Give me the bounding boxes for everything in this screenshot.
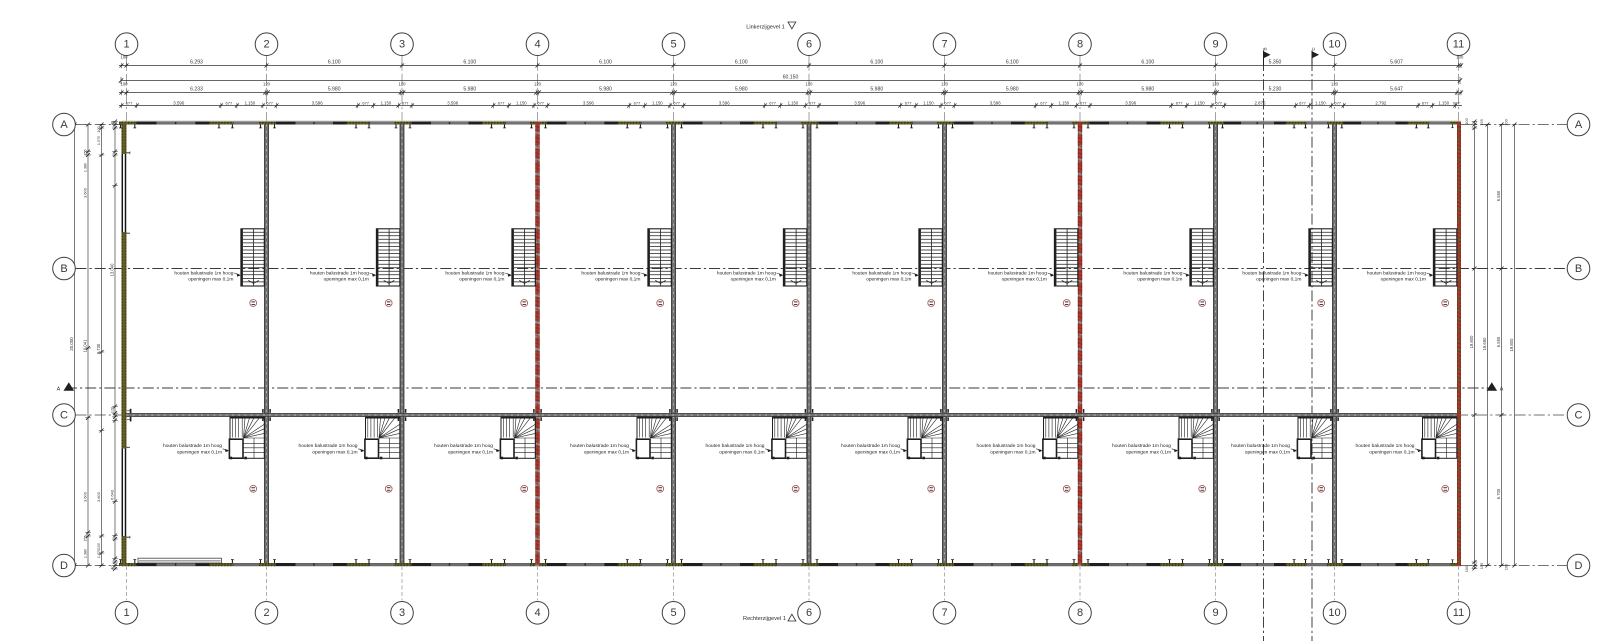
svg-text:5.980: 5.980	[599, 87, 612, 93]
svg-text:155: 155	[84, 535, 88, 541]
svg-text:3: 3	[399, 607, 405, 619]
svg-text:155: 155	[1479, 119, 1484, 126]
svg-text:houten balustrade 1m hoog: houten balustrade 1m hoog	[1231, 443, 1290, 449]
svg-text:6.100: 6.100	[463, 60, 476, 66]
svg-text:6.640: 6.640	[110, 489, 115, 500]
svg-text:openingen max 0,1m: openingen max 0,1m	[1256, 277, 1301, 283]
svg-text:1.150: 1.150	[381, 101, 392, 106]
svg-text:houten balustrade 1m hoog: houten balustrade 1m hoog	[1123, 270, 1182, 276]
svg-text:C: C	[60, 409, 68, 421]
svg-text:6: 6	[806, 39, 812, 51]
svg-text:8: 8	[1077, 607, 1083, 619]
svg-text:houten balustrade 1m hoog: houten balustrade 1m hoog	[163, 443, 222, 449]
svg-text:houten balustrade 1m hoog: houten balustrade 1m hoog	[1356, 443, 1415, 449]
svg-text:677: 677	[905, 101, 912, 106]
svg-text:677: 677	[537, 101, 544, 106]
svg-text:1.150: 1.150	[1194, 101, 1205, 106]
svg-text:1.150: 1.150	[1059, 101, 1070, 106]
svg-text:155: 155	[84, 149, 88, 155]
svg-text:houten balustrade 1m hoog: houten balustrade 1m hoog	[988, 270, 1047, 276]
svg-text:677: 677	[1299, 101, 1306, 106]
svg-text:40: 40	[111, 565, 115, 569]
svg-text:677: 677	[266, 101, 273, 106]
svg-text:openingen max 0,1m: openingen max 0,1m	[459, 277, 504, 283]
svg-text:6.100: 6.100	[1006, 60, 1019, 66]
svg-text:3.596: 3.596	[583, 101, 595, 106]
svg-text:1.150: 1.150	[516, 101, 527, 106]
svg-text:openingen max 0,1m: openingen max 0,1m	[990, 449, 1035, 455]
svg-text:A: A	[57, 386, 61, 392]
svg-text:3.596: 3.596	[854, 101, 866, 106]
svg-text:6.233: 6.233	[190, 87, 203, 93]
svg-text:5.980: 5.980	[328, 87, 341, 93]
svg-text:677: 677	[1176, 101, 1183, 106]
svg-text:1: 1	[123, 607, 129, 619]
svg-text:677: 677	[226, 101, 233, 106]
svg-text:openingen max 0,1m: openingen max 0,1m	[188, 277, 233, 283]
svg-text:C: C	[1575, 409, 1583, 421]
svg-text:houten balustrade 1m hoog: houten balustrade 1m hoog	[581, 270, 640, 276]
svg-text:19.800: 19.800	[1469, 335, 1474, 348]
svg-text:houten balustrade 1m hoog: houten balustrade 1m hoog	[1367, 270, 1426, 276]
svg-text:9.730: 9.730	[96, 343, 101, 354]
svg-text:3: 3	[399, 39, 405, 51]
svg-text:7: 7	[941, 607, 947, 619]
svg-text:openingen max 0,1m: openingen max 0,1m	[1137, 277, 1182, 283]
svg-text:120: 120	[399, 82, 407, 87]
svg-text:houten balustrade 1m hoog: houten balustrade 1m hoog	[310, 270, 369, 276]
svg-text:5: 5	[670, 39, 676, 51]
svg-text:B: B	[1575, 263, 1582, 275]
svg-text:4: 4	[534, 39, 540, 51]
svg-text:677: 677	[1453, 101, 1460, 106]
svg-text:1.150: 1.150	[1439, 101, 1450, 106]
svg-text:677: 677	[769, 101, 776, 106]
svg-text:houten balustrade 1m hoog: houten balustrade 1m hoog	[717, 270, 776, 276]
svg-text:Linkerzijgevel 1: Linkerzijgevel 1	[746, 25, 785, 31]
svg-text:100: 100	[1464, 117, 1469, 124]
svg-text:6.100: 6.100	[735, 60, 748, 66]
svg-text:houten balustrade 1m hoog: houten balustrade 1m hoog	[1242, 270, 1301, 276]
svg-text:openingen max 0,1m: openingen max 0,1m	[1126, 449, 1171, 455]
svg-text:openingen max 0,1m: openingen max 0,1m	[1245, 449, 1290, 455]
svg-text:5.980: 5.980	[735, 87, 748, 93]
svg-text:677: 677	[809, 101, 816, 106]
svg-text:677: 677	[1422, 101, 1429, 106]
svg-text:120: 120	[534, 82, 542, 87]
svg-text:openingen max 0,1m: openingen max 0,1m	[719, 449, 764, 455]
svg-text:120: 120	[941, 82, 949, 87]
svg-text:100: 100	[1464, 565, 1469, 572]
svg-text:3.600: 3.600	[83, 187, 88, 198]
svg-text:3.596: 3.596	[312, 101, 324, 106]
svg-text:1.070: 1.070	[97, 136, 101, 145]
svg-text:6.100: 6.100	[328, 60, 341, 66]
svg-text:openingen max 0,1m: openingen max 0,1m	[1381, 277, 1426, 283]
svg-text:13.040: 13.040	[110, 263, 115, 276]
svg-text:6.100: 6.100	[870, 60, 883, 66]
svg-text:40: 40	[111, 121, 115, 125]
svg-text:houten balustrade 1m hoog: houten balustrade 1m hoog	[852, 270, 911, 276]
svg-text:B: B	[1262, 47, 1267, 50]
svg-text:3.600: 3.600	[96, 491, 101, 502]
svg-text:1.380: 1.380	[84, 163, 88, 172]
svg-text:houten balustrade 1m hoog: houten balustrade 1m hoog	[434, 443, 493, 449]
svg-text:100: 100	[121, 82, 129, 87]
svg-text:2: 2	[263, 39, 269, 51]
svg-text:2: 2	[263, 607, 269, 619]
svg-text:120: 120	[1212, 82, 1220, 87]
svg-text:openingen max 0,1m: openingen max 0,1m	[1002, 277, 1047, 283]
svg-text:5.980: 5.980	[1141, 87, 1154, 93]
svg-text:A: A	[60, 119, 68, 131]
svg-text:openingen max 0,1m: openingen max 0,1m	[866, 277, 911, 283]
svg-text:D: D	[60, 560, 68, 572]
svg-text:6.100: 6.100	[599, 60, 612, 66]
svg-text:120: 120	[111, 407, 115, 413]
svg-text:11: 11	[1453, 39, 1464, 51]
svg-text:677: 677	[944, 101, 951, 106]
svg-text:1.150: 1.150	[788, 101, 799, 106]
svg-text:6.100: 6.100	[1141, 60, 1154, 66]
svg-text:120: 120	[1077, 82, 1085, 87]
svg-text:5.980: 5.980	[1006, 87, 1019, 93]
svg-text:9: 9	[1212, 607, 1218, 619]
svg-text:1.070: 1.070	[97, 549, 101, 558]
svg-text:3.596: 3.596	[447, 101, 459, 106]
svg-text:openingen max 0,1m: openingen max 0,1m	[855, 449, 900, 455]
svg-text:1.380: 1.380	[84, 549, 88, 558]
svg-text:A: A	[1575, 119, 1583, 131]
svg-text:openingen max 0,1m: openingen max 0,1m	[177, 449, 222, 455]
svg-text:677: 677	[498, 101, 505, 106]
svg-text:5: 5	[670, 607, 676, 619]
svg-text:5.647: 5.647	[1390, 87, 1403, 93]
svg-text:2.875: 2.875	[1255, 101, 1267, 106]
svg-text:9: 9	[1212, 39, 1218, 51]
svg-text:houten balustrade 1m hoog: houten balustrade 1m hoog	[445, 270, 504, 276]
svg-text:677: 677	[634, 101, 641, 106]
svg-text:120: 120	[670, 82, 678, 87]
svg-text:3.596: 3.596	[1125, 101, 1137, 106]
svg-text:openingen max 0,1m: openingen max 0,1m	[1369, 449, 1414, 455]
svg-text:20.000: 20.000	[69, 337, 74, 351]
svg-text:6.550: 6.550	[1496, 336, 1501, 347]
svg-text:677: 677	[1080, 101, 1087, 106]
svg-text:7: 7	[941, 39, 947, 51]
svg-text:houten balustrade 1m hoog: houten balustrade 1m hoog	[706, 443, 765, 449]
svg-text:5.980: 5.980	[463, 87, 476, 93]
svg-text:Rechterzijgevel 1: Rechterzijgevel 1	[743, 616, 786, 622]
svg-text:5.980: 5.980	[870, 87, 883, 93]
svg-text:10.041: 10.041	[83, 339, 88, 352]
svg-text:openingen max 0,1m: openingen max 0,1m	[584, 449, 629, 455]
svg-text:6.293: 6.293	[190, 60, 203, 66]
svg-text:6.550: 6.550	[1496, 190, 1501, 201]
svg-text:10: 10	[1328, 39, 1340, 51]
svg-text:houten balustrade 1m hoog: houten balustrade 1m hoog	[570, 443, 629, 449]
svg-text:openingen max 0,1m: openingen max 0,1m	[731, 277, 776, 283]
svg-text:677: 677	[362, 101, 369, 106]
svg-text:openingen max 0,1m: openingen max 0,1m	[595, 277, 640, 283]
svg-text:6.700: 6.700	[1496, 488, 1501, 499]
svg-text:houten balustrade 1m hoog: houten balustrade 1m hoog	[174, 270, 233, 276]
svg-text:60.150: 60.150	[783, 75, 799, 81]
svg-text:11: 11	[1453, 607, 1464, 619]
svg-text:houten balustrade 1m hoog: houten balustrade 1m hoog	[1112, 443, 1171, 449]
svg-text:houten balustrade 1m hoog: houten balustrade 1m hoog	[841, 443, 900, 449]
svg-text:B: B	[60, 263, 67, 275]
svg-text:1: 1	[123, 39, 129, 51]
svg-text:houten balustrade 1m hoog: houten balustrade 1m hoog	[977, 443, 1036, 449]
svg-text:100: 100	[97, 543, 101, 549]
svg-text:2.792: 2.792	[1375, 101, 1387, 106]
svg-text:19.690: 19.690	[1482, 337, 1487, 350]
svg-text:1.150: 1.150	[652, 101, 663, 106]
svg-text:6: 6	[806, 607, 812, 619]
svg-text:3.596: 3.596	[990, 101, 1002, 106]
svg-text:1.150: 1.150	[923, 101, 934, 106]
svg-text:677: 677	[1215, 101, 1222, 106]
svg-text:1.150: 1.150	[245, 101, 256, 106]
svg-text:100: 100	[1504, 118, 1509, 125]
svg-text:8: 8	[1077, 39, 1083, 51]
svg-text:120: 120	[806, 82, 814, 87]
svg-text:openingen max 0,1m: openingen max 0,1m	[324, 277, 369, 283]
svg-text:3.600: 3.600	[83, 491, 88, 502]
svg-text:100: 100	[97, 126, 101, 132]
svg-text:100: 100	[1504, 563, 1509, 570]
svg-text:677: 677	[126, 101, 133, 106]
svg-text:677: 677	[673, 101, 680, 106]
svg-text:openingen max 0,1m: openingen max 0,1m	[312, 449, 357, 455]
svg-text:120: 120	[263, 82, 271, 87]
svg-text:3.596: 3.596	[719, 101, 731, 106]
svg-text:677: 677	[1040, 101, 1047, 106]
svg-text:5.350: 5.350	[1269, 60, 1282, 66]
svg-text:19.800: 19.800	[1509, 338, 1514, 351]
svg-text:677: 677	[1334, 101, 1341, 106]
svg-text:10: 10	[1328, 607, 1340, 619]
svg-text:1.150: 1.150	[1315, 101, 1326, 106]
svg-text:D: D	[1575, 560, 1583, 572]
svg-text:120: 120	[1331, 82, 1339, 87]
svg-text:houten balustrade 1m hoog: houten balustrade 1m hoog	[299, 443, 358, 449]
svg-text:openingen max 0,1m: openingen max 0,1m	[448, 449, 493, 455]
svg-text:677: 677	[402, 101, 409, 106]
svg-text:5.230: 5.230	[1269, 87, 1282, 93]
svg-text:5.607: 5.607	[1390, 60, 1403, 66]
svg-text:3.596: 3.596	[173, 101, 185, 106]
svg-text:4: 4	[534, 607, 540, 619]
svg-text:155: 155	[1479, 563, 1484, 570]
